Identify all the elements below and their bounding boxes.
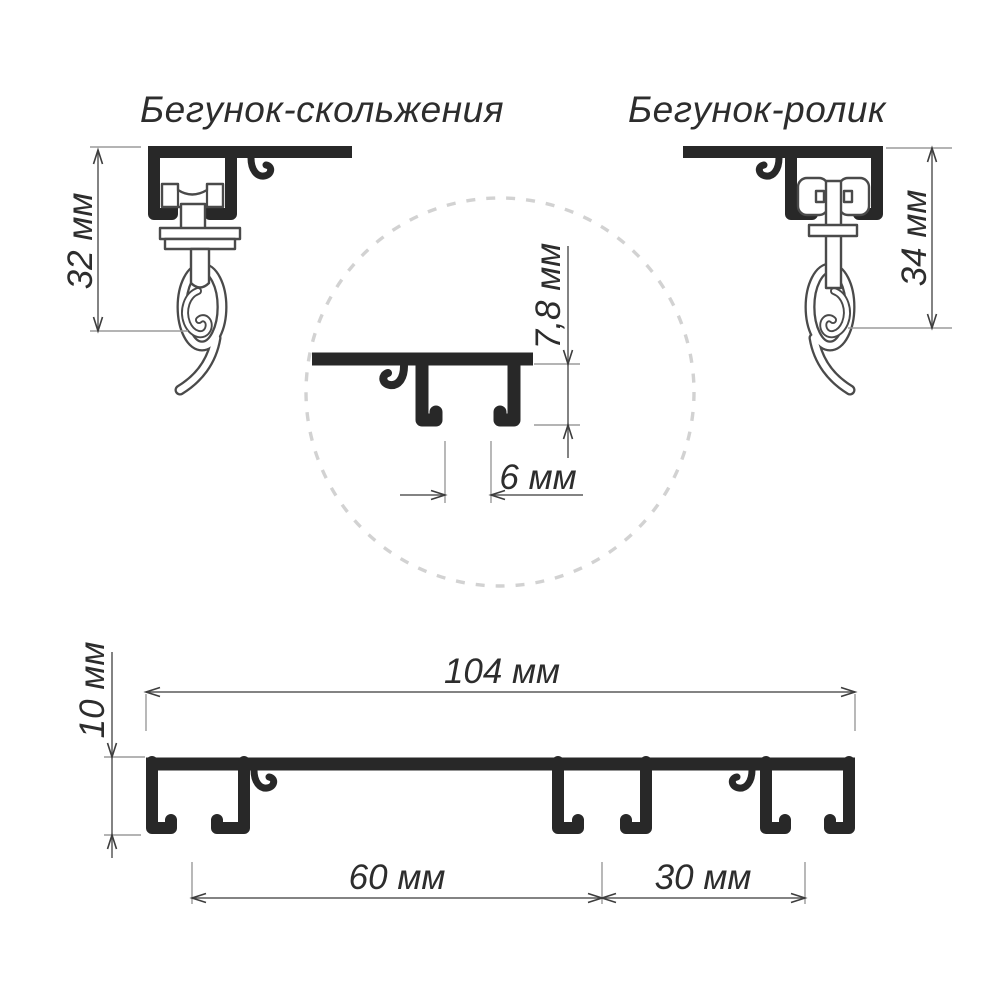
dim-label-10mm: 10 мм [73,642,112,739]
rail-hook-lip [759,158,779,176]
dim-label-6mm: 6 мм [499,458,576,497]
dim-profile-width: 104 мм [146,652,855,731]
roller-bracket [809,225,857,236]
slider-stem [191,249,209,288]
zoom-circle [306,198,694,586]
dim-label-34mm: 34 мм [895,190,934,287]
dim-roller-height: 34 мм [848,148,952,328]
curtain-rail-diagram: Бегунок-скольжения Бегунок-ролик [0,0,1000,1000]
dim-slot-width: 6 мм [400,441,583,503]
channel-left-wall [422,360,436,420]
roller-carriage [798,178,869,288]
rail-hook-lip [251,158,271,176]
profile-ch2-left-wall [558,762,578,828]
roller-runner-figure: 34 мм [683,148,952,390]
profile-ch2-right-wall [626,762,646,828]
channel-hook-lip [383,366,404,385]
figure-title-roller: Бегунок-ролик [628,89,887,130]
diagram-canvas: Бегунок-скольжения Бегунок-ролик [0,0,1000,1000]
channel-zoom-detail: 7,8 мм 6 мм [306,198,694,586]
roller-axle-left [816,191,824,202]
dim-profile-height: 10 мм [73,642,145,858]
dim-label-60mm: 60 мм [349,858,446,897]
profile-ch1-right-wall [217,762,244,828]
dim-channel-spacing: 60 мм 30 мм [192,858,805,904]
figure-title-slider: Бегунок-скольжения [140,89,504,130]
channel-right-wall [500,360,514,420]
profile-ch1-left-wall [152,762,171,828]
profile-hook-lip-2 [732,770,752,788]
profile-ch3-right-wall [830,762,849,828]
profile-hook-lip-1 [254,770,274,788]
profile-ch3-left-wall [766,762,785,828]
profile-section-figure: 10 мм 104 мм 60 мм 30 мм [73,642,855,904]
dim-label-7-8mm: 7,8 мм [529,243,568,349]
roller-axle-right [844,191,852,202]
dim-channel-height: 7,8 мм [529,243,580,458]
dim-label-104mm: 104 мм [444,652,560,691]
dim-label-30mm: 30 мм [655,858,752,897]
dim-label-32mm: 32 мм [61,193,100,290]
